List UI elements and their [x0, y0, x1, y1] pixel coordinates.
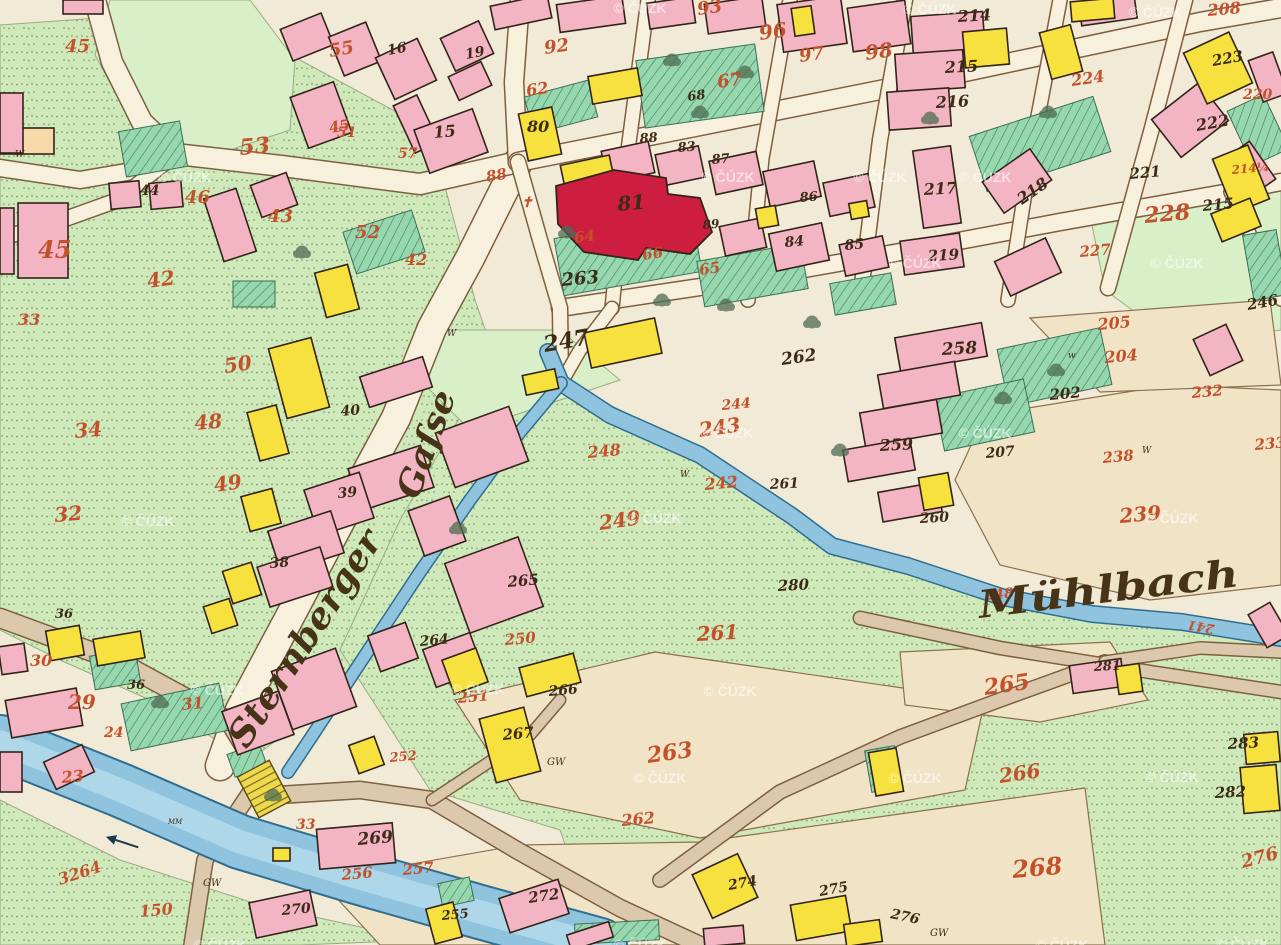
parcel-number-red: 205	[1096, 312, 1132, 334]
house-number-dark: 40	[340, 402, 361, 420]
parcel-number-red: 65	[698, 258, 721, 279]
parcel-number-red: 43	[268, 206, 293, 227]
parcel-number-red: 45	[328, 116, 352, 137]
land-use-mark: w	[1068, 351, 1076, 361]
parcel-number-red: 250	[503, 628, 537, 649]
land-use-mark: W	[680, 470, 690, 480]
parcel-number-red: 261	[695, 620, 739, 646]
parcel-number-red: 204	[1103, 345, 1139, 367]
house-number-dark: 207	[984, 443, 1016, 462]
cuzk-watermark: © ČÚZK	[888, 254, 941, 271]
parcel-number-red: 242	[703, 472, 739, 494]
house-number-dark: 214	[956, 5, 991, 26]
house-number-dark: 255	[440, 907, 469, 924]
parcel-number-red: 238	[1101, 446, 1135, 467]
house-number-dark: 19	[464, 44, 486, 63]
cuzk-watermark: © ČÚZK	[628, 509, 681, 526]
house-number-dark: 38	[269, 554, 290, 572]
house-number-dark: 36	[127, 678, 145, 693]
building-yellow	[1240, 765, 1280, 814]
parcel-number-red: 46	[185, 187, 211, 208]
house-number-dark: 221	[1128, 162, 1162, 183]
parcel-number-red: 244	[720, 395, 752, 414]
parcel-number-red: 23	[60, 766, 85, 787]
parcel-number-red: 62	[525, 78, 550, 100]
parcel-number-red: 67	[716, 69, 744, 93]
parcel-number-red: 64	[573, 226, 596, 247]
house-number-dark: 269	[356, 827, 394, 850]
parcel-number-red: 45	[38, 235, 71, 264]
building-yellow	[849, 201, 870, 220]
land-use-mark: GW	[547, 757, 566, 768]
parcel-number-red: 24	[103, 725, 123, 741]
cuzk-watermark: © ČÚZK	[701, 168, 754, 185]
land-use-mark: W	[15, 150, 25, 160]
cuzk-watermark: © ČÚZK	[1128, 3, 1181, 20]
building-pink	[109, 181, 141, 210]
garden-parcel	[233, 281, 275, 307]
parcel-number-red: 150	[139, 899, 174, 921]
building-yellow	[273, 848, 290, 861]
house-number-dark: 15	[433, 121, 457, 142]
house-number-dark: 202	[1048, 383, 1082, 404]
house-number-dark: 281	[1092, 659, 1121, 675]
house-number-dark: 86	[799, 189, 818, 206]
house-number-dark: 282	[1213, 782, 1246, 802]
building-pink	[63, 0, 103, 14]
parcel-number-red: 50	[222, 350, 253, 378]
parcel-number-red: 98	[863, 37, 894, 65]
house-number-dark: 80	[526, 117, 549, 136]
cuzk-watermark: © ČÚZK	[121, 512, 174, 529]
parcel-number-red: 34	[73, 417, 103, 443]
parcel-number-red: 57	[398, 146, 418, 162]
house-number-dark: 264	[418, 631, 450, 650]
house-number-dark: 259	[878, 434, 913, 455]
parcel-number-red: 92	[543, 35, 571, 59]
cuzk-watermark: © ČÚZK	[158, 168, 211, 185]
parcel-number-red: ✝	[521, 195, 533, 211]
house-number-dark: 265	[506, 570, 540, 591]
cuzk-watermark: © ČÚZK	[888, 769, 941, 786]
parcel-number-red: 49	[212, 469, 243, 497]
cuzk-watermark: © ČÚZK	[1145, 509, 1198, 526]
parcel-number-red: 256	[340, 863, 374, 884]
house-number-dark: 87	[711, 151, 730, 168]
house-number-dark: 258	[940, 338, 978, 360]
cuzk-watermark: © ČÚZK	[703, 682, 756, 699]
parcel-number-red: 33	[18, 310, 40, 329]
house-number-dark: 16	[386, 40, 408, 59]
house-number-dark: 83	[677, 139, 696, 156]
cuzk-watermark: © ČÚZK	[613, 0, 666, 16]
building-pink	[0, 752, 22, 792]
parcel-number-red: 33	[296, 817, 316, 833]
parcel-number-red: 233	[1253, 433, 1281, 454]
parcel-number-red: 42	[405, 250, 427, 269]
parcel-number-red: 29	[67, 690, 96, 714]
cuzk-watermark: © ČÚZK	[958, 168, 1011, 185]
parcel-number-red: 32	[53, 501, 83, 527]
parcel-number-red: 88	[485, 164, 509, 185]
cuzk-watermark: © ČÚZK	[903, 0, 956, 17]
parcel-number-red: 248	[586, 440, 622, 462]
house-number-dark: 88	[639, 130, 658, 147]
cuzk-watermark: © ČÚZK	[958, 424, 1011, 441]
building-yellow	[791, 6, 815, 37]
parcel-number-red: 55	[327, 37, 355, 62]
parcel-number-red: 228	[1142, 199, 1191, 229]
house-number-dark: 260	[918, 509, 949, 527]
house-number-dark: 266	[547, 681, 579, 700]
house-number-dark: 215	[943, 56, 978, 77]
parcel-number-red: 232	[1190, 381, 1224, 402]
house-number-dark: 261	[768, 475, 799, 493]
parcel-number-red: 97	[798, 43, 826, 67]
cuzk-watermark: © ČÚZK	[451, 680, 504, 697]
cuzk-watermark: © ČÚZK	[633, 769, 686, 786]
house-number-dark: 270	[280, 900, 312, 919]
land-use-mark: W	[1142, 446, 1152, 456]
cuzk-watermark: © ČÚZK	[613, 936, 666, 945]
house-number-dark: 68	[686, 88, 706, 105]
cadastral-map-svg: 4553464345425242555751459293969798676264…	[0, 0, 1281, 945]
house-number-dark: 263	[560, 267, 600, 291]
house-number-dark: 283	[1226, 733, 1259, 753]
land-use-mark: W	[447, 329, 457, 339]
parcel-number-red: 30	[30, 651, 52, 670]
building-yellow	[755, 205, 778, 228]
house-number-dark: 39	[337, 484, 358, 502]
house-number-dark: 81	[615, 190, 646, 216]
cuzk-watermark: © ČÚZK	[190, 681, 243, 698]
cuzk-watermark: © ČÚZK	[1150, 254, 1203, 271]
cuzk-watermark: © ČÚZK	[1145, 768, 1198, 785]
cuzk-watermark: © ČÚZK	[1035, 936, 1088, 945]
parcel-number-red: 53	[238, 132, 271, 161]
house-number-dark: 215	[1201, 194, 1235, 215]
parcel-number-red: 42	[145, 265, 176, 293]
building-yellow	[918, 473, 953, 511]
building-yellow	[1070, 0, 1115, 22]
building-yellow	[844, 920, 883, 945]
parcel-number-red: 48	[193, 409, 223, 435]
parcel-number-red: 268	[1010, 851, 1064, 884]
building-pink	[0, 208, 14, 274]
cuzk-watermark: © ČÚZK	[700, 424, 753, 441]
building-pink	[0, 93, 23, 153]
building-pink	[0, 643, 28, 674]
building-pink	[703, 925, 744, 945]
parcel-number-red: 257	[401, 858, 435, 879]
house-number-dark: 89	[702, 217, 721, 232]
parcel-number-red: 66	[641, 243, 665, 264]
land-use-mark: MM	[167, 818, 183, 826]
land-use-mark: GW	[203, 878, 222, 889]
house-number-dark: 217	[922, 178, 957, 199]
parcel-number-red: 93	[696, 0, 724, 20]
house-number-dark: 216	[934, 91, 969, 112]
parcel-number-red: 262	[620, 808, 656, 830]
cadastral-map: 4553464345425242555751459293969798676264…	[0, 0, 1281, 945]
land-use-mark: GW	[930, 928, 949, 939]
parcel-number-red: 220	[1242, 87, 1272, 103]
parcel-number-red: 52	[355, 222, 380, 243]
parcel-number-red: 227	[1078, 240, 1112, 261]
parcel-number-red: 208	[1206, 0, 1242, 20]
house-number-dark: 84	[784, 233, 805, 251]
cuzk-watermark: © ČÚZK	[193, 936, 246, 945]
house-number-dark: 44	[140, 183, 159, 199]
cuzk-watermark: © ČÚZK	[853, 168, 906, 185]
house-number-dark: 280	[776, 575, 810, 595]
parcel-number-red: 96	[757, 17, 788, 45]
house-number-dark: 85	[844, 236, 865, 254]
house-number-dark: 267	[501, 723, 535, 744]
parcel-number-red: 252	[388, 749, 417, 766]
cuzk-watermark: © ČÚZK	[1216, 935, 1269, 945]
parcel-number-red: 45	[65, 36, 90, 57]
house-number-dark: 36	[55, 607, 73, 622]
